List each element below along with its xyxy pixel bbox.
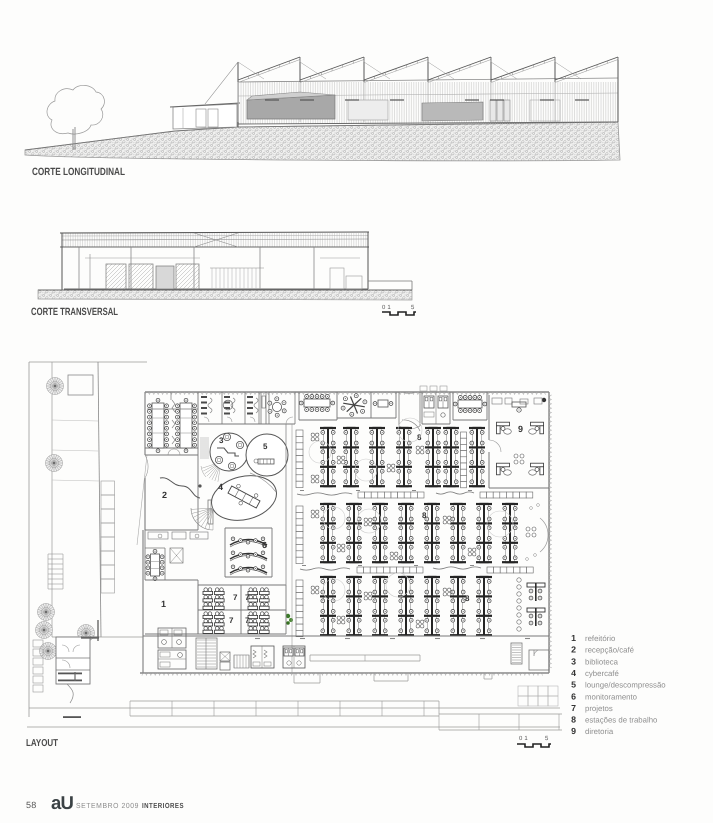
svg-text:8: 8: [571, 715, 576, 725]
svg-text:7: 7: [245, 593, 250, 602]
svg-text:9: 9: [518, 424, 523, 434]
svg-text:diretoria: diretoria: [585, 727, 614, 736]
svg-text:4: 4: [571, 668, 576, 678]
svg-text:58: 58: [26, 800, 37, 810]
svg-text:6: 6: [262, 540, 267, 550]
svg-text:INTERIORES: INTERIORES: [142, 801, 184, 810]
svg-text:5: 5: [263, 442, 268, 451]
svg-text:1: 1: [571, 633, 576, 643]
svg-text:recepção/café: recepção/café: [585, 646, 634, 655]
svg-text:biblioteca: biblioteca: [585, 657, 619, 666]
svg-text:CORTE TRANSVERSAL: CORTE TRANSVERSAL: [31, 306, 118, 318]
svg-text:3: 3: [219, 436, 224, 445]
svg-text:7: 7: [233, 593, 238, 602]
svg-text:2: 2: [162, 490, 167, 500]
svg-text:CORTE LONGITUDINAL: CORTE LONGITUDINAL: [32, 166, 125, 178]
svg-text:5: 5: [411, 304, 415, 311]
svg-text:3: 3: [571, 656, 576, 666]
svg-text:2: 2: [571, 645, 576, 655]
svg-text:6: 6: [571, 691, 576, 701]
svg-text:7: 7: [571, 703, 576, 713]
svg-text:4: 4: [218, 482, 223, 492]
svg-text:monitoramento: monitoramento: [585, 692, 638, 701]
svg-text:0 1: 0 1: [519, 735, 528, 742]
svg-text:8: 8: [422, 511, 427, 520]
svg-text:aU: aU: [51, 792, 73, 813]
svg-text:refeitório: refeitório: [585, 634, 616, 643]
svg-text:8: 8: [465, 594, 470, 603]
svg-text:1: 1: [161, 599, 166, 609]
svg-text:0 1: 0 1: [382, 304, 391, 311]
svg-text:cybercafé: cybercafé: [585, 669, 619, 678]
svg-text:9: 9: [571, 726, 576, 736]
svg-text:5: 5: [571, 680, 576, 690]
svg-text:lounge/descompressão: lounge/descompressão: [585, 681, 666, 690]
svg-text:5: 5: [545, 735, 549, 742]
svg-text:7: 7: [245, 616, 250, 625]
svg-text:7: 7: [229, 616, 234, 625]
svg-text:projetos: projetos: [585, 704, 613, 713]
svg-text:estações de trabalho: estações de trabalho: [585, 716, 658, 725]
svg-text:LAYOUT: LAYOUT: [26, 738, 58, 749]
svg-text:SETEMBRO 2009: SETEMBRO 2009: [76, 801, 139, 810]
